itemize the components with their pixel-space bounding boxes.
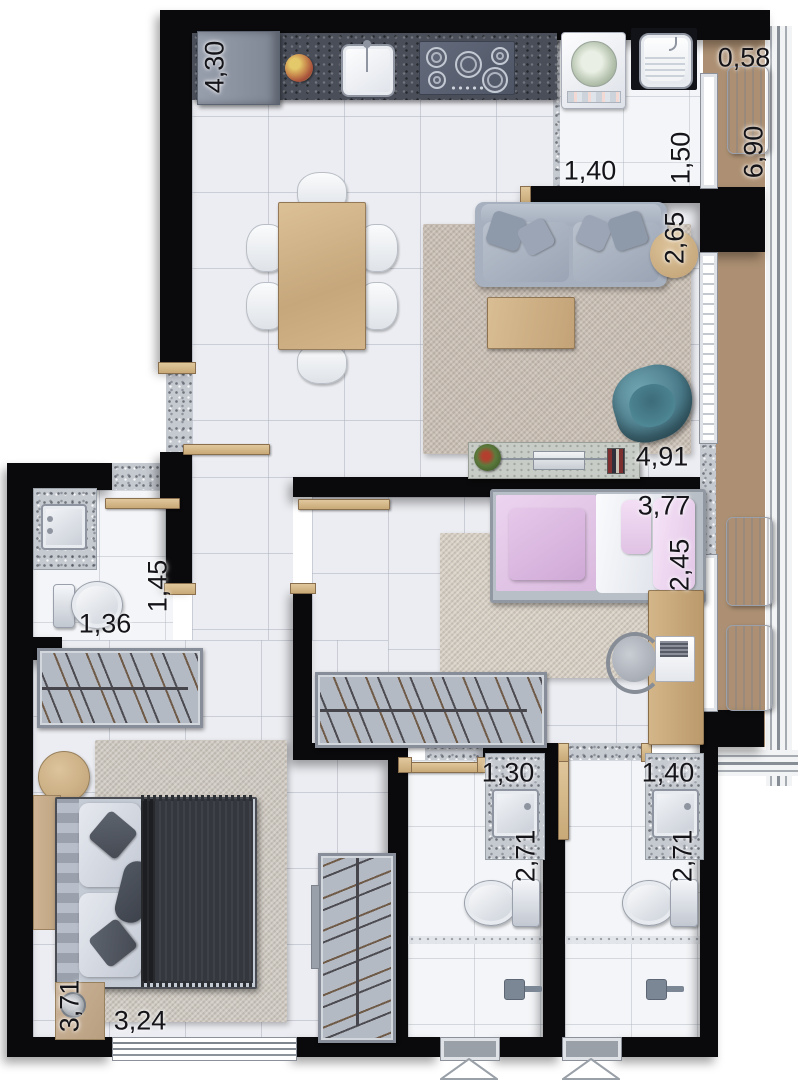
faucet-pipe (366, 46, 368, 72)
laundry-sink (639, 33, 693, 89)
toilet-tank (512, 879, 540, 927)
fruit-bowl (285, 54, 313, 82)
toilet-tank (670, 879, 698, 927)
dimension-bathroom1-width: 1,30 (482, 760, 535, 787)
mirror-panel (311, 885, 320, 969)
master-bedroom-window (112, 1037, 297, 1061)
bathroom1-window-opening-icon (440, 1058, 498, 1080)
cooktop (419, 41, 515, 95)
burner-icon (491, 47, 509, 65)
shower-head-icon (504, 979, 525, 1000)
cooktop-knobs (450, 86, 484, 90)
plant (474, 444, 501, 471)
wall (160, 10, 192, 368)
washboard (645, 57, 685, 81)
books (607, 448, 625, 474)
dimension-balcony-width: 0,58 (718, 45, 771, 72)
master-wardrobe (318, 853, 396, 1043)
dimension-bedroom2-length: 3,77 (638, 493, 691, 520)
wall (293, 588, 312, 760)
dimension-living-length: 4,91 (636, 444, 689, 471)
washing-machine (561, 32, 626, 109)
tv-soundbar (499, 458, 609, 460)
dimension-kitchen-counter: 4,30 (202, 41, 229, 94)
desk-chair-seat (612, 636, 656, 682)
laptop-keyboard (660, 641, 688, 657)
toilet (622, 880, 676, 926)
tv (533, 451, 585, 470)
dimension-living-width: 2,65 (662, 212, 689, 265)
ac-condenser-unit (726, 517, 773, 606)
laundry-balcony-door (700, 73, 718, 189)
armchair-seat (625, 379, 681, 432)
kitchen-sink (341, 44, 395, 97)
door-frame (398, 757, 412, 773)
entry-door-leaf (183, 444, 270, 455)
faucet-icon (47, 516, 53, 522)
bathroom1-door-leaf (400, 762, 484, 773)
floor-plan: 4,30 0,58 6,90 1,40 1,50 2,65 4,91 3,77 … (0, 0, 798, 1080)
living-balcony-sliding-door (699, 252, 718, 444)
wall (695, 10, 770, 40)
door-frame (558, 743, 569, 762)
dimension-laundry-width: 1,40 (564, 158, 617, 185)
burner-icon (455, 51, 482, 78)
burner-icon (428, 71, 446, 89)
toilet (464, 880, 518, 926)
faucet-icon (524, 803, 531, 810)
dimension-bathroom2-width: 1,40 (642, 760, 695, 787)
burner-icon (426, 47, 447, 68)
wall (700, 187, 765, 252)
dining-table (278, 202, 366, 350)
washer-controls (567, 91, 621, 103)
double-bed (55, 797, 257, 989)
dimension-wc-width: 1,36 (79, 611, 132, 638)
faucet-icon (669, 37, 677, 51)
burner-icon (482, 67, 508, 93)
hall-closet (37, 648, 203, 728)
ac-condenser-unit (726, 625, 773, 711)
faucet-icon (684, 803, 691, 810)
dimension-laundry-depth: 1,50 (668, 132, 695, 185)
washer-drum (571, 41, 617, 87)
sofa (475, 202, 667, 287)
wall (620, 1037, 718, 1057)
door-frame (290, 583, 316, 594)
shower-head-icon (646, 979, 667, 1000)
bathroom2-door-leaf (558, 758, 569, 840)
headboard-tufted (57, 799, 79, 983)
folded-blanket (509, 508, 585, 580)
dimension-bedroom2-width: 2,45 (667, 539, 694, 592)
blanket-fringe (141, 981, 253, 987)
wall (7, 1037, 112, 1057)
desk-chair (598, 626, 660, 692)
dimension-wc-depth: 1,45 (145, 560, 172, 613)
dimension-bathroom2-depth: 2,71 (670, 830, 697, 883)
wc-sink (41, 504, 87, 550)
coffee-table (487, 297, 575, 349)
dimension-master-width: 3,71 (57, 980, 84, 1033)
bedroom2-wardrobe (315, 672, 547, 748)
wall (527, 186, 700, 203)
bedroom2-door-leaf (298, 499, 390, 510)
door-frame (158, 362, 196, 374)
wall (7, 463, 33, 1057)
dimension-balcony-length: 6,90 (741, 126, 768, 179)
faucet-icon (47, 528, 53, 534)
dining-chair (297, 344, 347, 384)
dark-blanket (141, 799, 253, 983)
bathroom2-window-opening-icon (562, 1058, 620, 1080)
dimension-bathroom1-depth: 2,71 (513, 830, 540, 883)
wall (498, 1037, 562, 1057)
dimension-master-length: 3,24 (114, 1008, 167, 1035)
blanket-fringe (141, 795, 253, 801)
wc-door-leaf (105, 498, 180, 509)
